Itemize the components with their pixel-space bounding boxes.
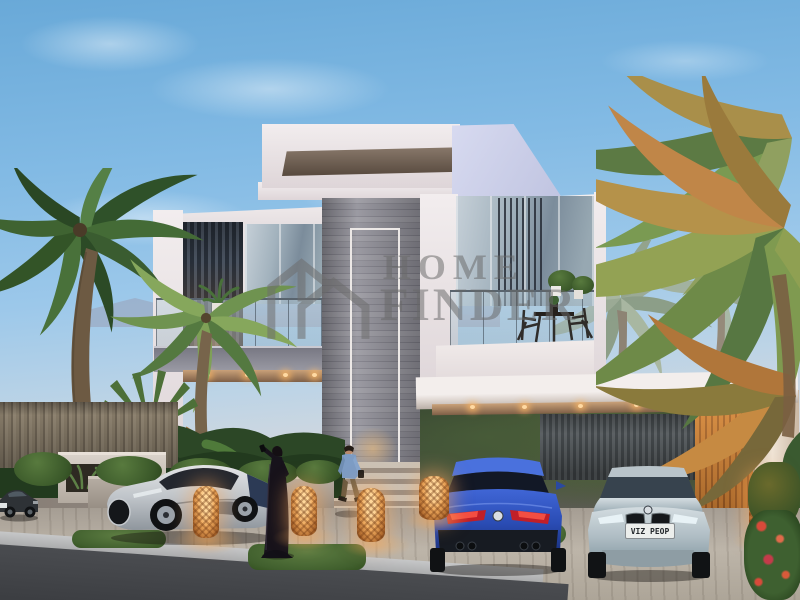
plant-pot (551, 286, 561, 296)
plant-pot (574, 290, 583, 299)
balcony-table-and-chairs (512, 294, 598, 348)
cloud (20, 16, 200, 72)
cloud (150, 58, 390, 120)
villa-rendering-scene: VIZ PEOP HOME FINDER (0, 0, 800, 600)
flower-bush (744, 510, 800, 600)
downlight (470, 405, 475, 409)
downlight (522, 405, 527, 409)
downlight (578, 404, 583, 408)
wicker-lantern (357, 488, 385, 542)
wicker-lantern (193, 486, 219, 538)
bush (14, 452, 72, 486)
wicker-lantern (419, 476, 449, 520)
dark-sedan-car (0, 484, 40, 524)
license-plate: VIZ PEOP (625, 523, 675, 539)
wicker-lantern (291, 486, 317, 536)
